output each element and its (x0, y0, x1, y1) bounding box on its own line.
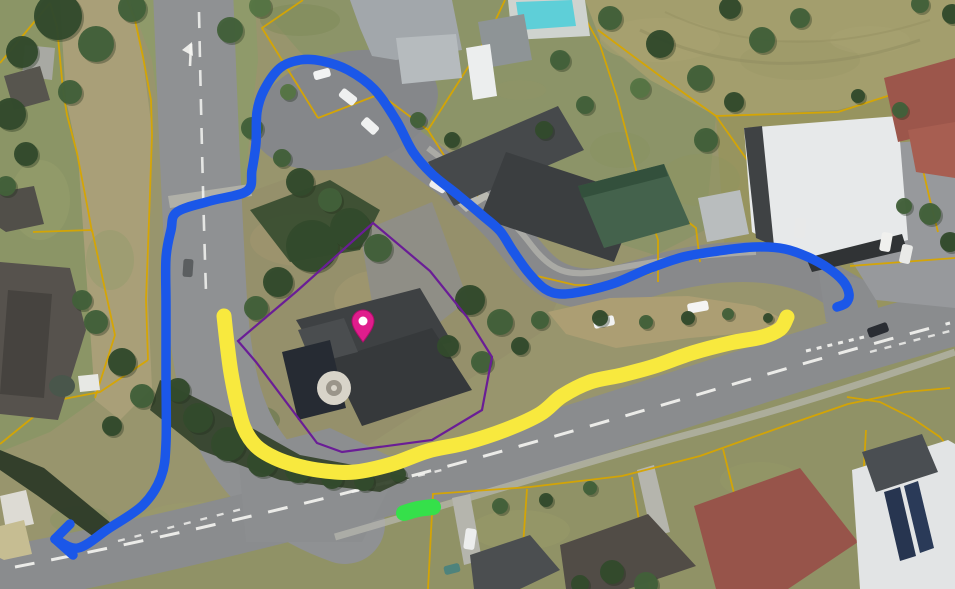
tree (14, 142, 38, 166)
tree (598, 6, 622, 30)
tree (535, 121, 553, 139)
tree (217, 17, 243, 43)
tree (851, 89, 865, 103)
tree (592, 310, 608, 326)
tree (280, 84, 296, 100)
tree (263, 267, 293, 297)
tree (410, 112, 426, 128)
garden-pond (49, 375, 75, 397)
tree (539, 493, 553, 507)
tree (273, 149, 291, 167)
tree (511, 337, 529, 355)
tree (330, 208, 370, 248)
satellite-map-canvas[interactable] (0, 0, 955, 589)
tree (583, 481, 597, 495)
tree (630, 78, 650, 98)
tree (646, 30, 674, 58)
tree (639, 315, 653, 329)
tree (444, 132, 460, 148)
tree (694, 128, 718, 152)
tree (102, 416, 122, 436)
tree (763, 313, 773, 323)
satellite-map[interactable] (0, 0, 955, 589)
tree (681, 311, 695, 325)
tree (6, 36, 38, 68)
tree (437, 335, 459, 357)
tree (790, 8, 810, 28)
shed-white-west (78, 374, 100, 392)
vehicle (794, 218, 806, 239)
tree (72, 290, 92, 310)
tree (318, 188, 342, 212)
tree (550, 50, 570, 70)
tree (896, 198, 912, 214)
tree (722, 308, 734, 320)
tree (724, 92, 744, 112)
grass-patch (590, 132, 650, 168)
tree (244, 296, 268, 320)
roof-west-house-gable (0, 290, 52, 398)
vehicle (182, 259, 193, 278)
tree (108, 348, 136, 376)
tree (78, 26, 114, 62)
roof-top-gray-wing (396, 34, 462, 84)
tree (183, 403, 213, 433)
grass-patch (494, 80, 546, 100)
tree (58, 80, 82, 104)
segment-green (404, 507, 433, 513)
tree (749, 27, 775, 53)
tree (130, 384, 154, 408)
tree (364, 234, 392, 262)
tree (286, 168, 314, 196)
tree (492, 498, 508, 514)
tree (919, 203, 941, 225)
tree (687, 65, 713, 91)
tree (576, 96, 594, 114)
tree (487, 309, 513, 335)
tree (531, 311, 549, 329)
roof-shed-center (698, 190, 749, 242)
tree (892, 102, 908, 118)
pin-hole (359, 317, 368, 326)
patio-circle-center (331, 385, 337, 391)
tree (600, 560, 624, 584)
tree (455, 285, 485, 315)
tree (84, 310, 108, 334)
